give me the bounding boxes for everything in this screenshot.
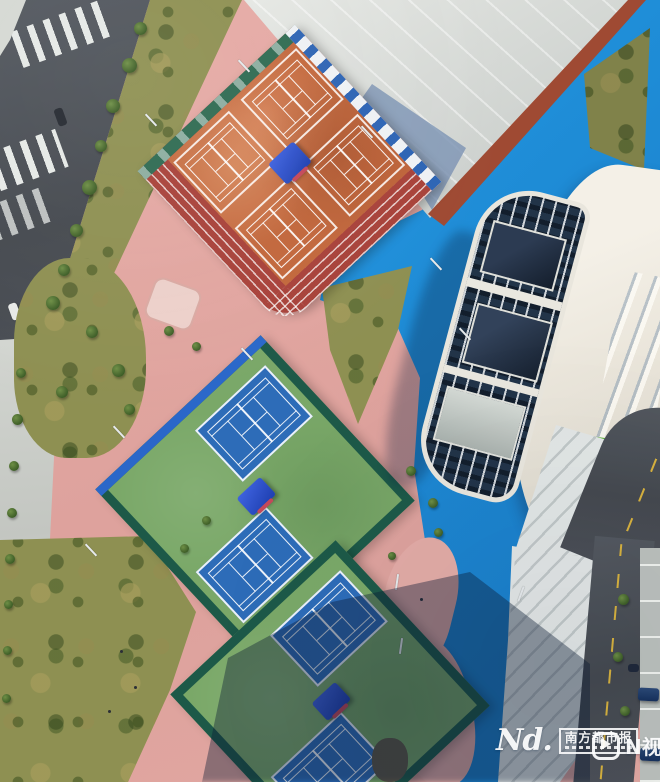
pedestrian: [108, 710, 111, 713]
tree: [58, 264, 70, 276]
gazebo: [142, 275, 204, 333]
tree: [124, 404, 135, 415]
tree: [406, 466, 416, 476]
blue-canopy-tent: [236, 477, 276, 516]
rooftop-equipment: [433, 386, 527, 461]
tree: [106, 99, 120, 113]
tree: [428, 498, 438, 508]
tree: [164, 326, 174, 336]
tree: [70, 224, 83, 237]
tree: [2, 694, 11, 703]
tree: [620, 706, 630, 716]
tree: [7, 508, 17, 518]
aerial-photo-sports-park: Nd. 南方都市报 N视频: [0, 0, 660, 782]
parked-car: [628, 664, 639, 672]
tree: [56, 386, 68, 398]
blue-canopy-tent: [268, 141, 312, 185]
tree: [202, 516, 211, 525]
pedestrian: [120, 650, 123, 653]
pedestrian: [134, 686, 137, 689]
tree: [388, 552, 396, 560]
tree: [613, 652, 623, 662]
tree: [434, 528, 443, 537]
nvideo-watermark: N视频: [592, 731, 660, 760]
tree: [134, 22, 147, 35]
nvideo-label: N视频: [625, 731, 660, 760]
tree: [95, 140, 107, 152]
tree: [9, 461, 19, 471]
tree: [12, 414, 23, 425]
tree: [192, 342, 201, 351]
tree: [112, 364, 125, 377]
play-icon: [592, 732, 620, 760]
scrub-patch-left: [14, 258, 146, 458]
rooftop-equipment: [462, 303, 553, 383]
tree: [180, 544, 189, 553]
tree: [86, 326, 98, 338]
parked-car: [638, 687, 660, 701]
tree: [46, 296, 60, 310]
tree: [16, 368, 26, 378]
rooftop-equipment: [480, 220, 567, 292]
tree: [4, 600, 13, 609]
tree: [5, 554, 15, 564]
tree: [618, 594, 629, 605]
nandu-wordmark: Nd.: [496, 726, 552, 756]
tree: [122, 58, 137, 73]
tree: [82, 180, 97, 195]
tree: [3, 646, 12, 655]
